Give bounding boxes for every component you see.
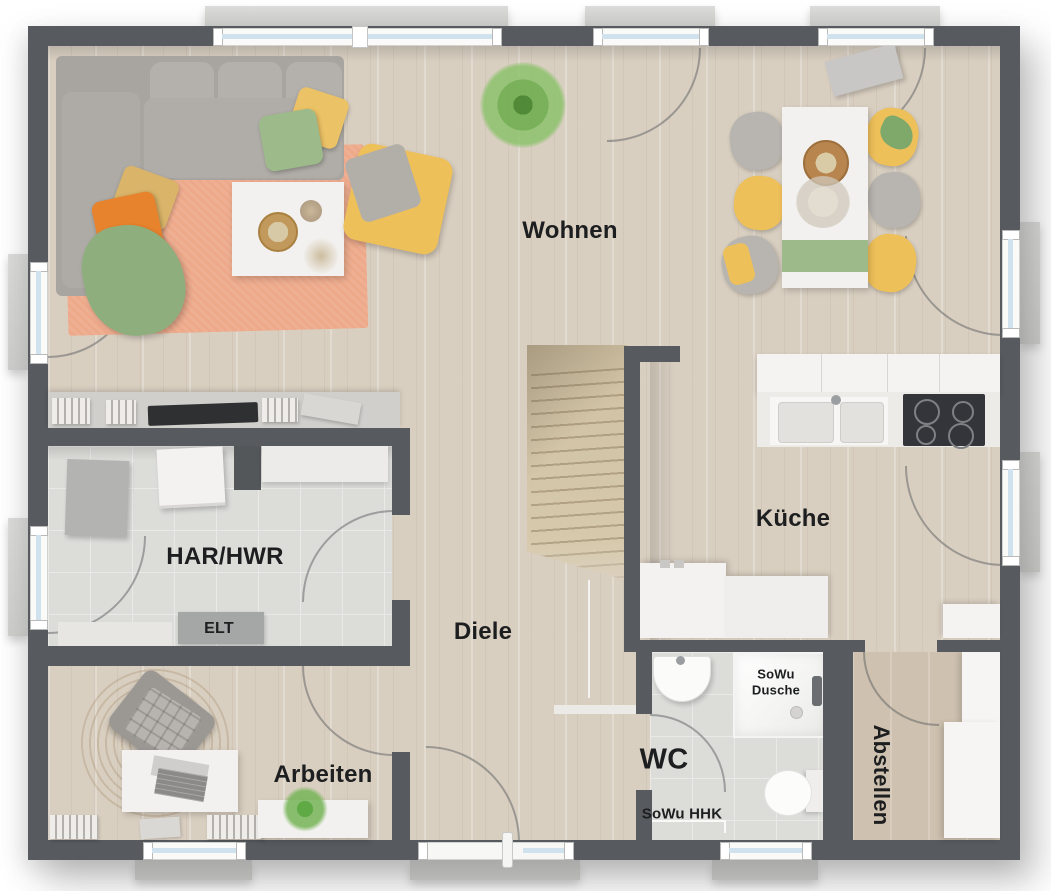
fridge [640, 563, 726, 638]
wall-storage-stub [853, 640, 865, 652]
floor-plan: Wohnen Küche Diele HAR/HWR Arbeiten WC A… [0, 0, 1051, 891]
wall-kitchen-wc [624, 640, 823, 652]
wall-office-hall [392, 752, 410, 840]
sill-right-dining [1020, 222, 1040, 344]
sill-top-dining [810, 6, 940, 26]
wall-stair-kitchen [624, 346, 640, 652]
window-office-bottom [143, 842, 246, 860]
pillow-green [258, 107, 325, 172]
window-living-left [30, 262, 48, 364]
window-glass [729, 848, 803, 853]
label-elt: ELT [204, 620, 234, 638]
door-glass [1008, 239, 1013, 329]
books [207, 815, 263, 839]
book-flat [139, 817, 180, 840]
wall-kitchen-storage [937, 640, 1000, 652]
sill-left-living [8, 254, 28, 370]
room-label-kueche: Küche [756, 505, 830, 533]
door-dining-right [1002, 230, 1020, 338]
wall-utility-office [48, 646, 410, 666]
label-sowu-dusche: SoWu Dusche [743, 666, 809, 697]
sink-basin [840, 402, 884, 443]
entry-step [410, 860, 580, 880]
burner [914, 399, 940, 425]
books [50, 815, 98, 839]
wall-stair-stub [624, 346, 680, 362]
kitchen-upper-cabinets [757, 354, 1000, 392]
books [262, 398, 298, 422]
window-wc-bottom [720, 842, 812, 860]
fridge-handle [674, 560, 684, 568]
door-glass [1008, 469, 1013, 557]
wall-wc-storage [823, 640, 853, 840]
utility-low-cabinet [58, 622, 172, 646]
books [106, 400, 136, 424]
window-utility-left [30, 526, 48, 630]
books [52, 398, 90, 424]
room-label-arbeiten: Arbeiten [274, 761, 373, 789]
door-kitchen-right [1002, 460, 1020, 566]
sill-top-center [585, 6, 715, 26]
stairs [527, 345, 627, 588]
dried-plant [304, 236, 338, 276]
burner [916, 425, 936, 445]
burner [952, 401, 974, 423]
label-sowu-hhk: SoWu HHK [642, 806, 722, 823]
shower-fixture [812, 676, 822, 706]
window-glass [36, 271, 41, 355]
room-label-har-hwr: HAR/HWR [166, 543, 283, 571]
burner [948, 423, 974, 449]
sill-top-living [205, 6, 508, 26]
shoe-rack-edge [588, 580, 590, 698]
decor-bowl [258, 212, 298, 252]
table-runner [782, 240, 868, 272]
faucet [831, 395, 841, 405]
sill-left-utility [8, 518, 28, 636]
wall-living-utility [48, 428, 410, 446]
centerpiece-flowers [796, 176, 850, 228]
kitchen-lower-counter [726, 576, 828, 638]
wc-faucet [676, 656, 685, 665]
decor-vase [300, 200, 322, 222]
storage-shelf [962, 650, 1000, 722]
sill-bottom-wc [712, 860, 818, 880]
kitchen-corner-cabinet [943, 604, 1000, 638]
window-mullion [352, 26, 368, 48]
room-label-abstellen: Abstellen [868, 725, 894, 826]
tv [148, 402, 259, 426]
wall-utility-hall [392, 600, 410, 646]
fridge-handle [660, 560, 670, 568]
entry-door-sidelight [523, 848, 567, 853]
wall-utility-hall [392, 446, 410, 515]
entry-door [418, 842, 574, 860]
utility-counter [262, 444, 388, 482]
shower-drain [790, 706, 803, 719]
window-glass [152, 848, 237, 853]
utility-locker [234, 444, 261, 490]
wall-wc-hall [636, 652, 652, 714]
sill-bottom-office [135, 860, 252, 880]
room-label-diele: Diele [454, 618, 512, 646]
sink-basin [778, 402, 834, 443]
storage-shelf [944, 722, 1000, 838]
plant-small [282, 786, 328, 832]
window-dining-top [818, 28, 934, 46]
sill-right-kitchen [1020, 452, 1040, 572]
room-label-wohnen: Wohnen [522, 217, 617, 245]
room-label-wc: WC [640, 744, 689, 777]
window-glass [602, 34, 700, 39]
window-hall-top [593, 28, 709, 46]
entry-door-handle [502, 832, 513, 868]
window-glass [36, 535, 41, 621]
washer-gray [65, 459, 130, 537]
plant-palm [480, 62, 566, 148]
washer-white [157, 446, 226, 508]
window-glass [827, 34, 925, 39]
